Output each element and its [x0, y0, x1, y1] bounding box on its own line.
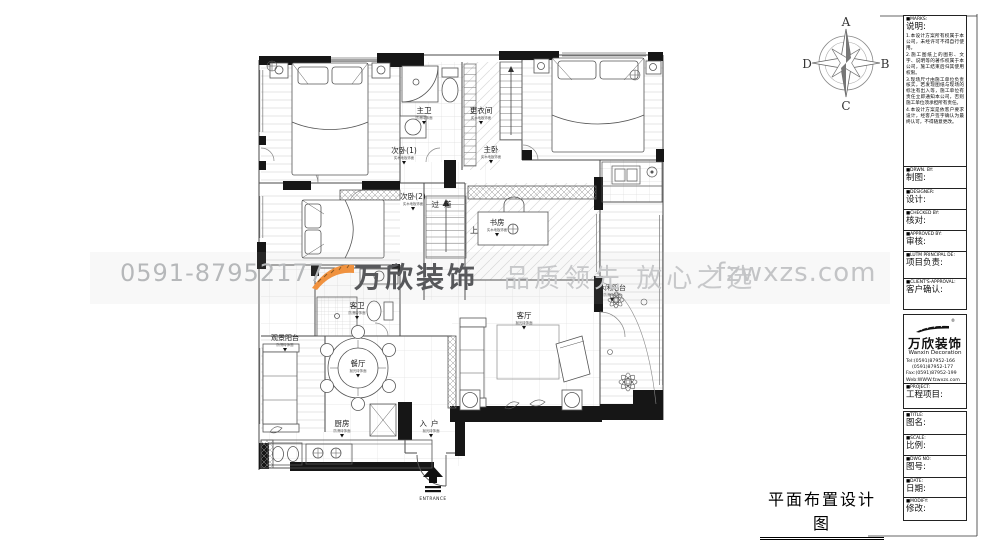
- company-fax: Fax:(0591)87952-199: [906, 371, 964, 377]
- date-section: ■DATE: 日期:: [903, 477, 967, 498]
- compass-letter-w: D: [802, 57, 812, 71]
- company-name: 万欣装饰: [906, 337, 964, 350]
- marks-note-2: 2.施工图纸上的图形、文字、说明等的著作权属于本公司，施工结束后归其使用权限。: [906, 53, 964, 77]
- approved-by-zh: 审核:: [906, 237, 964, 248]
- project-zh: 工程项目:: [906, 390, 964, 401]
- svg-text:次卧(1): 次卧(1): [391, 145, 417, 155]
- svg-text:观景阳台: 观景阳台: [271, 333, 299, 342]
- compass-letter-n: A: [841, 15, 851, 29]
- svg-text:实木地板饰面: 实木地板饰面: [481, 154, 502, 159]
- stairs-up-label: 上: [470, 226, 478, 235]
- drawing-sheet: ENTRANCE 上: [0, 0, 983, 549]
- drawing-title: 平面布置设计图: [760, 486, 884, 538]
- svg-text:次卧(2): 次卧(2): [400, 191, 426, 201]
- marks-note-4: 4.本设计方案是依客户要求设计，经客户签字确认为最终认可，不得随意更改。: [906, 108, 964, 126]
- marks-header-zh: 说明:: [906, 22, 964, 33]
- drawing-name-zh: 图名:: [906, 418, 964, 429]
- svg-text:防滑砖饰面: 防滑砖饰面: [416, 115, 434, 120]
- entrance-label: ENTRANCE: [419, 496, 446, 502]
- drawn-by-section: ■DRWN. BY: 制图:: [903, 166, 967, 189]
- project-section: ■PROJECT: 工程项目:: [903, 383, 967, 409]
- svg-text:实木地板饰面: 实木地板饰面: [403, 201, 424, 206]
- svg-text:主卫: 主卫: [417, 105, 432, 115]
- company-logo-swoosh: [915, 324, 951, 333]
- view-balcony-furniture: [263, 344, 299, 433]
- svg-text:抛光砖饰面: 抛光砖饰面: [423, 428, 441, 433]
- company-reg-mark: ®: [951, 318, 955, 323]
- svg-text:实木地板饰面: 实木地板饰面: [394, 155, 415, 160]
- compass-letter-e: B: [881, 57, 890, 71]
- svg-text:实木地板饰面: 实木地板饰面: [487, 227, 508, 232]
- svg-text:防滑砖饰面: 防滑砖饰面: [334, 428, 352, 433]
- compass-letter-s: C: [841, 99, 850, 113]
- client-approval-section: ■CLIENT'S-APPROVAL: 客户确认:: [903, 278, 967, 310]
- svg-text:防滑砖饰面: 防滑砖饰面: [277, 342, 295, 347]
- designer-zh: 设计:: [906, 195, 964, 206]
- svg-text:客卫: 客卫: [350, 300, 365, 310]
- client-approval-zh: 客户确认:: [906, 285, 964, 296]
- dwg-no-section: ■DWG NO: 图号:: [903, 455, 967, 478]
- svg-text:客厅: 客厅: [517, 310, 532, 320]
- room-label-bedroom2: 次卧(2) 实木地板饰面: [400, 191, 426, 211]
- company-section: ® 万欣装饰 Wanxin Decoration Tel:(0591)87952…: [903, 314, 967, 384]
- marks-section: ■MARKS: 说明: 1.本设计方案所有权属于本公司，未经许可不得自行使用。 …: [903, 15, 967, 167]
- marks-note-3: 3.现场尺寸由施工单位负责核实，若发现图纸与现场的标注有出入等，施工单位有责任立…: [906, 78, 964, 108]
- svg-text:防滑砖饰面: 防滑砖饰面: [349, 310, 367, 315]
- svg-text:实木地板饰面: 实木地板饰面: [471, 115, 492, 120]
- modify-zh: 修改:: [906, 504, 964, 515]
- svg-text:餐厅: 餐厅: [351, 359, 366, 368]
- company-name-en: Wanxin Decoration: [906, 350, 964, 357]
- scale-section: ■SCALE: 比例:: [903, 434, 967, 456]
- floor-plan: ENTRANCE 上: [0, 0, 983, 549]
- svg-text:入户: 入户: [420, 418, 443, 428]
- designer-section: ■DESIGNER: 设计:: [903, 188, 967, 210]
- checked-by-zh: 核对:: [906, 216, 964, 227]
- principal-zh: 项目负责:: [906, 258, 964, 269]
- svg-text:厨房: 厨房: [335, 418, 350, 428]
- drawing-name-section: ■TITLE: 图名:: [903, 411, 967, 435]
- drawing-title-text: 平面布置设计图: [768, 490, 876, 533]
- svg-text:书房: 书房: [490, 217, 505, 227]
- company-web: Web:WWW.fzwxzs.com: [906, 378, 964, 384]
- svg-text:休闲阳台: 休闲阳台: [598, 283, 626, 292]
- svg-text:防滑砖饰面: 防滑砖饰面: [604, 292, 622, 297]
- drawn-by-zh: 制图:: [906, 173, 964, 184]
- dwg-no-zh: 图号:: [906, 462, 964, 473]
- modify-section: ■MODIFY: 修改:: [903, 497, 967, 521]
- room-label-corridor: 过道: [432, 199, 457, 209]
- svg-text:抛光砖饰面: 抛光砖饰面: [350, 368, 368, 373]
- master-bedroom-furniture: [534, 58, 661, 152]
- scale-zh: 比例:: [906, 441, 964, 452]
- approved-by-section: ■APPROVED BY: 审核:: [903, 230, 967, 252]
- principal-section: ■LUTM PRINCIPAL DE: 项目负责:: [903, 251, 967, 279]
- svg-text:过道: 过道: [432, 199, 457, 209]
- svg-text:更衣间: 更衣间: [470, 105, 493, 115]
- marks-note-1: 1.本设计方案所有权属于本公司，未经许可不得自行使用。: [906, 34, 964, 52]
- compass-rose: A B C D: [802, 15, 889, 113]
- svg-text:抛光砖饰面: 抛光砖饰面: [516, 320, 534, 325]
- checked-by-section: ■CHECKED BY: 核对:: [903, 209, 967, 231]
- title-block: ■MARKS: 说明: 1.本设计方案所有权属于本公司，未经许可不得自行使用。 …: [903, 16, 967, 521]
- svg-text:主卧: 主卧: [484, 144, 499, 154]
- date-zh: 日期:: [906, 484, 964, 495]
